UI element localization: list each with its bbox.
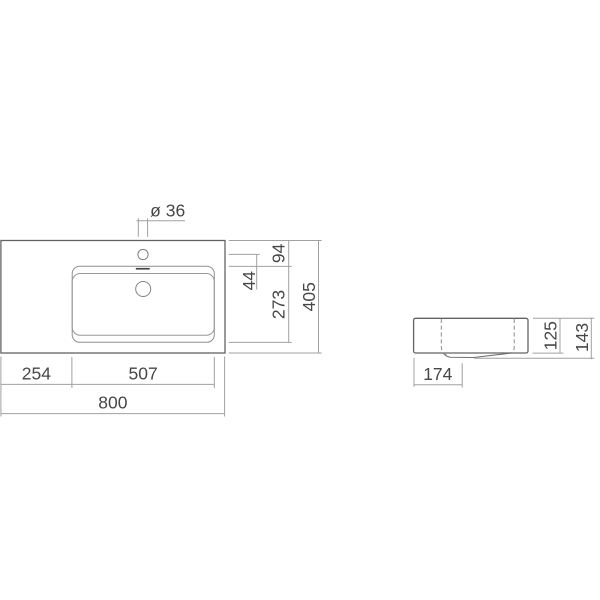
svg-text:125: 125	[541, 321, 561, 350]
svg-text:273: 273	[269, 290, 289, 319]
svg-text:254: 254	[22, 363, 51, 383]
svg-text:143: 143	[572, 323, 592, 352]
svg-text:800: 800	[98, 392, 127, 412]
svg-text:94: 94	[269, 243, 289, 263]
svg-text:507: 507	[128, 363, 157, 383]
svg-text:405: 405	[299, 282, 319, 311]
svg-text:174: 174	[423, 364, 452, 384]
svg-text:44: 44	[239, 271, 259, 291]
svg-text:ø 36: ø 36	[150, 200, 185, 220]
